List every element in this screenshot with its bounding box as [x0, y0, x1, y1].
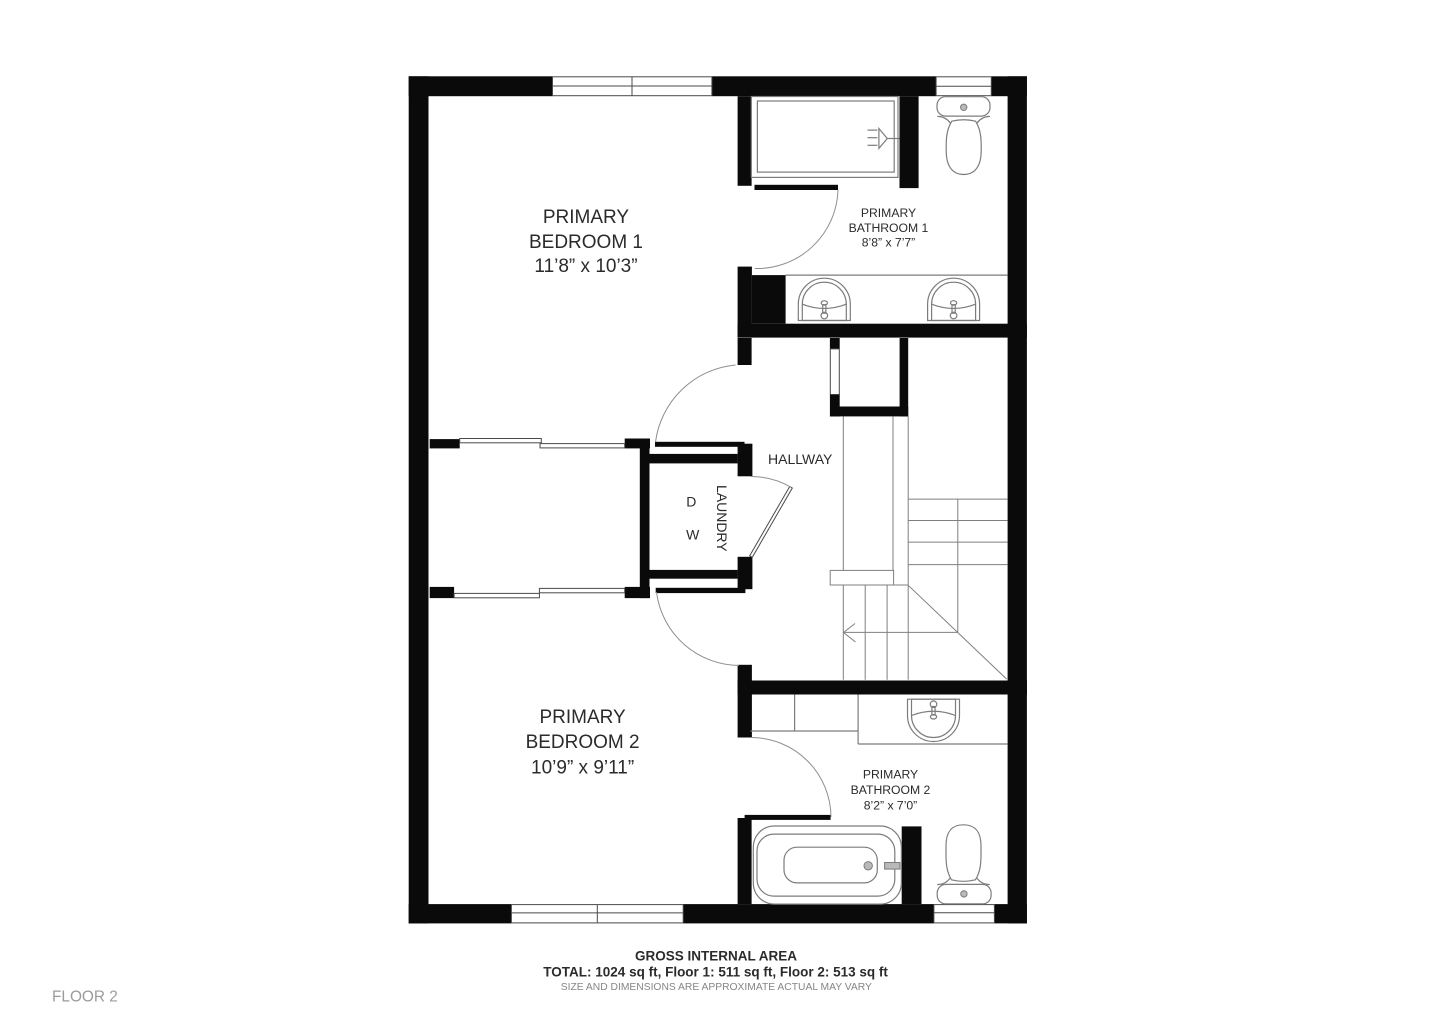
svg-text:GROSS INTERNAL AREA: GROSS INTERNAL AREA: [635, 949, 797, 964]
svg-text:HALLWAY: HALLWAY: [768, 451, 833, 467]
svg-text:LAUNDRY: LAUNDRY: [714, 485, 730, 552]
svg-text:PRIMARY: PRIMARY: [861, 206, 916, 220]
svg-text:BEDROOM 2: BEDROOM 2: [526, 732, 640, 753]
svg-text:TOTAL: 1024 sq ft, Floor 1: 51: TOTAL: 1024 sq ft, Floor 1: 511 sq ft, F…: [543, 965, 888, 980]
svg-text:8’8” x 7’7”: 8’8” x 7’7”: [862, 236, 916, 250]
svg-text:PRIMARY: PRIMARY: [863, 767, 918, 781]
svg-text:W: W: [686, 526, 700, 542]
svg-text:SIZE AND DIMENSIONS ARE APPROX: SIZE AND DIMENSIONS ARE APPROXIMATE ACTU…: [561, 982, 872, 993]
svg-text:BATHROOM 1: BATHROOM 1: [849, 221, 929, 235]
svg-text:BEDROOM 1: BEDROOM 1: [529, 232, 643, 253]
svg-text:10’9” x 9’11”: 10’9” x 9’11”: [531, 757, 634, 778]
svg-text:PRIMARY: PRIMARY: [539, 707, 626, 728]
svg-text:FLOOR 2: FLOOR 2: [52, 989, 118, 1006]
svg-text:PRIMARY: PRIMARY: [543, 207, 630, 228]
svg-text:BATHROOM 2: BATHROOM 2: [851, 783, 931, 797]
svg-text:8’2” x 7’0”: 8’2” x 7’0”: [864, 798, 918, 812]
svg-text:11’8” x 10’3”: 11’8” x 10’3”: [534, 256, 637, 277]
svg-text:D: D: [686, 493, 696, 509]
